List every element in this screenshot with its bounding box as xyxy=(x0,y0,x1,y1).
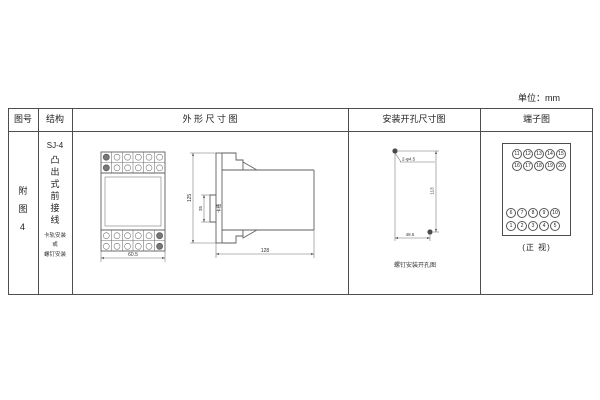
figure-no: 附图4 xyxy=(17,186,30,241)
terminal: 7 xyxy=(517,208,527,218)
terminal: 8 xyxy=(528,208,538,218)
slot-dim: 35 xyxy=(198,206,203,212)
terminal: 2 xyxy=(517,221,527,231)
vertical-dim: 113 xyxy=(430,187,435,195)
terminal: 6 xyxy=(506,208,516,218)
figure-no-cell: 附图4 xyxy=(8,132,38,295)
terminal: 13 xyxy=(534,149,544,159)
terminal: 10 xyxy=(550,208,560,218)
terminal: 9 xyxy=(539,208,549,218)
terminal-row-3: 678910 xyxy=(506,208,561,218)
front-width-dim: 60.5 xyxy=(128,252,138,258)
terminal: 16 xyxy=(512,161,522,171)
side-depth-dim: 128 xyxy=(261,248,270,254)
terminal-row-1: 1112131415 xyxy=(512,149,567,159)
front-body xyxy=(101,173,165,230)
rail-slot xyxy=(210,195,216,222)
mount-note-line1: 卡轨安装 xyxy=(44,232,66,241)
front-view-drawing: 60.5 xyxy=(96,145,174,265)
front-cover xyxy=(105,177,161,226)
terminal: 12 xyxy=(523,149,533,159)
mount-note: 卡轨安装 或 螺钉安装 xyxy=(44,232,66,260)
mount-note-line2: 或 xyxy=(44,241,66,250)
terminal: 19 xyxy=(545,161,555,171)
col-divider-2 xyxy=(72,108,73,295)
terminal-row-4: 12345 xyxy=(506,221,561,231)
terminal: 3 xyxy=(528,221,538,231)
terminal: 5 xyxy=(550,221,560,231)
side-height-dim: 125 xyxy=(187,194,193,203)
mounting-caption: 螺钉安装开孔图 xyxy=(394,261,436,269)
terminal: 17 xyxy=(523,161,533,171)
terminal: 15 xyxy=(556,149,566,159)
terminal-diagram-box: 1112131415 1617181920 678910 12345 xyxy=(502,143,571,236)
header-outline: 外 形 尺 寸 图 xyxy=(72,108,348,131)
header-structure: 结构 xyxy=(38,108,72,131)
col-divider-4 xyxy=(480,108,481,295)
terminal: 11 xyxy=(512,149,522,159)
header-divider xyxy=(8,131,593,132)
structure-cell: SJ-4 凸出式前接线 卡轨安装 或 螺钉安装 xyxy=(38,132,72,295)
mount-hole-bottom xyxy=(427,229,432,234)
header-figure-no: 图号 xyxy=(8,108,38,131)
header-terminal: 端子图 xyxy=(480,108,593,131)
unit-label: 单位：mm xyxy=(478,91,560,104)
mount-hole-top xyxy=(392,148,397,153)
terminal: 20 xyxy=(556,161,566,171)
terminal-caption: (正 视) xyxy=(480,242,593,253)
mounting-hole-drawing: 2-φ4.5 113 48.5 螺钉安装开孔图 xyxy=(358,140,478,275)
bottom-wedge xyxy=(243,230,257,238)
horizontal-dim: 48.5 xyxy=(406,232,415,237)
header-mounting: 安装开孔尺寸图 xyxy=(348,108,480,131)
col-divider-3 xyxy=(348,108,349,295)
terminal: 4 xyxy=(539,221,549,231)
terminal: 14 xyxy=(545,149,555,159)
side-view-drawing: 125 35 卡槽 128 xyxy=(183,140,328,265)
structure-type-label: 凸出式前接线 xyxy=(49,155,62,227)
model-label: SJ-4 xyxy=(47,141,63,150)
terminal: 1 xyxy=(506,221,516,231)
mount-note-line3: 螺钉安装 xyxy=(44,251,66,260)
top-wedge xyxy=(243,162,257,170)
terminal-row-2: 1617181920 xyxy=(512,161,567,171)
terminal: 18 xyxy=(534,161,544,171)
holes-label: 2-φ4.5 xyxy=(402,157,416,162)
slot-label: 卡槽 xyxy=(216,204,223,213)
